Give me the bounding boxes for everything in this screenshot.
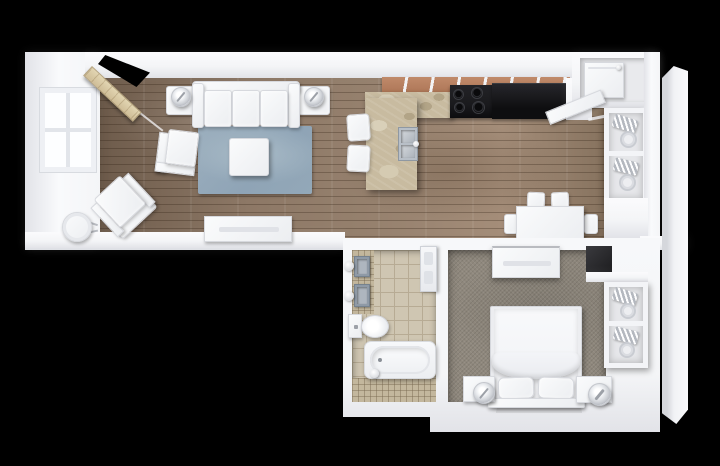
vanity-light [344, 261, 354, 271]
dresser-drawer [503, 261, 551, 266]
sink-faucet [413, 141, 419, 147]
bar-stool [346, 113, 371, 142]
stove-cooktop [450, 85, 492, 118]
bathroom-sink [354, 284, 370, 307]
headboard [487, 398, 585, 408]
bathtub-drain [378, 358, 382, 362]
wire-basket [619, 342, 635, 358]
dining-east-wall [604, 198, 648, 238]
kitchen-sink [398, 127, 418, 161]
bathroom-sink [354, 256, 370, 277]
closet-shelf-divider [607, 321, 645, 326]
table-lamp [304, 87, 324, 107]
tv-console-drawer [219, 227, 279, 232]
sink-bowl [357, 287, 367, 304]
bathtub-faucet [370, 369, 379, 378]
sink-bowl [357, 259, 367, 274]
sofa-cushion [232, 90, 260, 127]
dresser [492, 246, 560, 278]
table-lamp [171, 87, 191, 107]
living-room-window [40, 88, 96, 172]
stove-burner [472, 101, 485, 114]
pillow [538, 376, 575, 399]
toilet-tank [348, 314, 362, 338]
side-table [62, 212, 92, 242]
linen-closet [604, 108, 648, 204]
vanity-light [344, 291, 354, 301]
sink-basin [401, 145, 415, 158]
wire-basket [620, 303, 636, 319]
pillow [498, 376, 535, 399]
bathtub [364, 341, 436, 379]
coffee-table [229, 138, 269, 176]
toilet-bowl [361, 315, 389, 338]
sofa-cushion [260, 90, 288, 127]
stove-burner [453, 89, 464, 100]
bar-stool [346, 144, 370, 172]
wire-shelf [613, 157, 639, 175]
bathroom-floor-accent [352, 378, 436, 402]
accent-chair [154, 128, 199, 177]
floor-plan-stage [0, 0, 720, 466]
water-heater-cap [616, 65, 621, 70]
accent-chair-seat [164, 129, 199, 168]
door-panel [424, 271, 433, 284]
dining-chair [584, 214, 598, 234]
sofa-arm [288, 83, 300, 128]
bed [490, 306, 582, 406]
dining-table [516, 206, 584, 240]
exterior-wall [662, 66, 688, 424]
bedroom-closet [604, 282, 648, 368]
closet-shelf-divider [607, 151, 645, 156]
bedroom-closet-nook [586, 246, 612, 274]
stove-burner [454, 102, 465, 113]
toilet-flush [354, 325, 358, 329]
sofa [192, 81, 300, 129]
sofa-arm [192, 83, 204, 128]
wire-basket [620, 131, 637, 148]
table-lamp [473, 382, 495, 404]
door-panel [424, 252, 433, 265]
tv-console [204, 216, 292, 242]
table-lamp [588, 383, 611, 406]
wire-basket [619, 174, 636, 191]
closet-shelf [586, 272, 648, 282]
bathroom-door [420, 246, 437, 292]
sofa-cushion [204, 90, 232, 127]
stove-burner [471, 87, 483, 99]
